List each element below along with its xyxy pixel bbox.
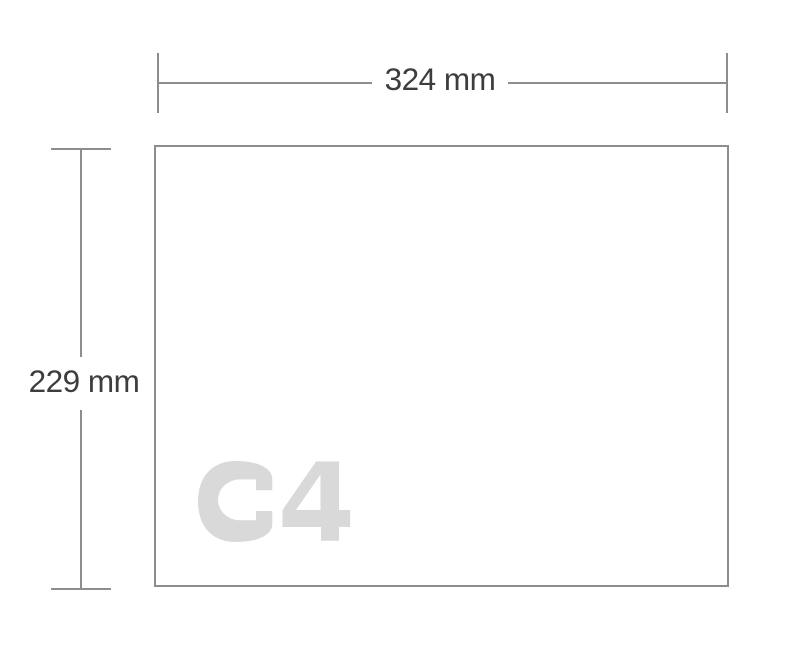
svg-text:324 mm: 324 mm [385,61,496,97]
svg-text:229 mm: 229 mm [29,363,140,399]
